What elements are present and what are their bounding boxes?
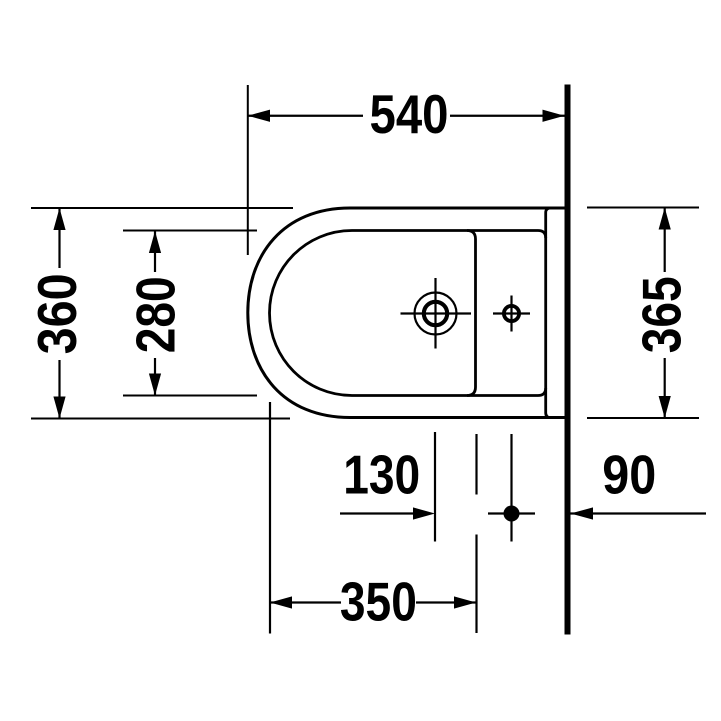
svg-text:365: 365 [630,276,692,353]
svg-text:130: 130 [343,444,420,506]
svg-text:280: 280 [125,276,187,353]
svg-text:360: 360 [26,273,88,354]
svg-text:540: 540 [370,83,449,145]
svg-text:90: 90 [602,444,656,506]
svg-text:350: 350 [340,570,417,632]
